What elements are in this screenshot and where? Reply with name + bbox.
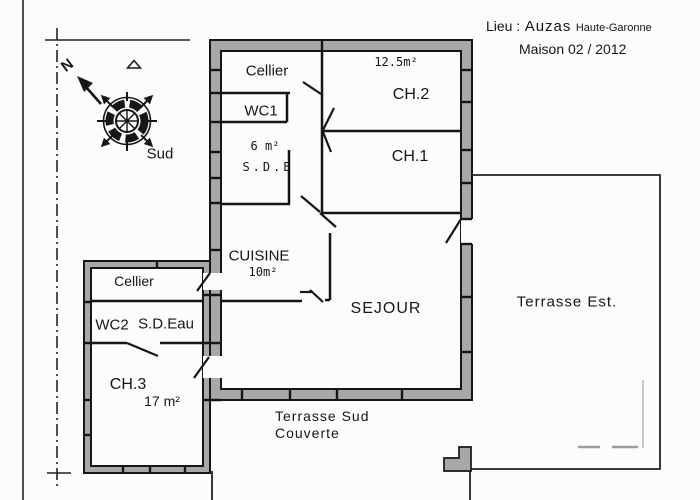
header-place: Auzas: [525, 18, 572, 35]
room-area-cuisine: 10m²: [249, 266, 278, 278]
room-area-sdb: 6 m²: [251, 140, 280, 152]
header-maison-line: Maison 02 / 2012: [519, 41, 626, 57]
compass-rose: [77, 61, 157, 152]
terrasse-sud-label-line1: Terrasse Sud: [275, 409, 369, 423]
floor-plan-page: Lieu : Auzas Haute-Garonne Maison 02 / 2…: [0, 0, 700, 500]
room-label-cellier-annex: Cellier: [114, 274, 154, 288]
door-swings: [127, 82, 461, 378]
terrasse-est-outline: [470, 175, 660, 469]
triangle-marker: [128, 61, 141, 69]
ghost-lines: [578, 380, 643, 448]
floorplan-drawing: [0, 0, 700, 500]
header-region: Haute-Garonne: [576, 22, 652, 34]
terrasse-est-label: Terrasse Est.: [517, 295, 618, 310]
property-boundary-lines: [23, 0, 190, 500]
compass-south-label: Sud: [147, 147, 174, 162]
annex-walls: [84, 261, 210, 473]
entry-step: [444, 447, 471, 471]
room-label-wc1: WC1: [244, 104, 277, 119]
terrasse-sud-label-line2: Couverte: [275, 426, 340, 440]
terrace-outlines: [212, 175, 660, 500]
room-area-ch2: 12.5m²: [374, 56, 417, 68]
wall-openings: [203, 219, 473, 378]
room-label-ch1: CH.1: [392, 149, 428, 165]
room-label-wc2: WC2: [95, 318, 128, 333]
room-label-sdb: S.D.B: [242, 161, 293, 173]
room-area-ch3: 17 m²: [144, 394, 180, 408]
room-label-sdeau: S.D.Eau: [138, 317, 194, 332]
room-label-cellier-main: Cellier: [246, 64, 289, 79]
room-label-ch3: CH.3: [110, 377, 146, 393]
room-label-ch2: CH.2: [393, 87, 429, 103]
header-lieu-label: Lieu :: [486, 18, 520, 34]
north-arrow: [77, 76, 101, 104]
room-label-sejour: SEJOUR: [351, 301, 422, 317]
room-label-cuisine: CUISINE: [229, 249, 290, 264]
header-location-line: Lieu : Auzas Haute-Garonne: [486, 18, 652, 36]
